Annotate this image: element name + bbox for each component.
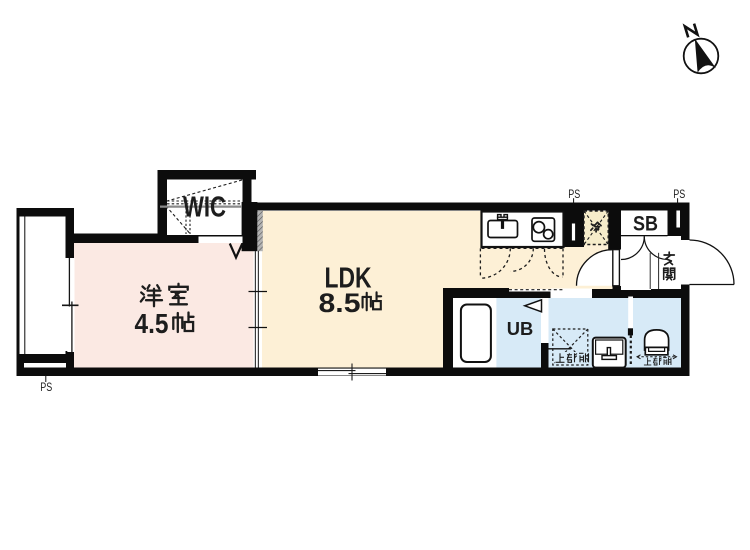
svg-text:8.5: 8.5 [319,288,361,318]
svg-text:PS: PS [40,382,52,394]
svg-text:PS: PS [673,189,685,201]
svg-text:WIC: WIC [183,191,226,223]
svg-text:PS: PS [568,189,580,201]
svg-text:UB: UB [507,318,534,339]
svg-text:SB: SB [633,212,658,235]
svg-text:4.5: 4.5 [135,308,169,339]
